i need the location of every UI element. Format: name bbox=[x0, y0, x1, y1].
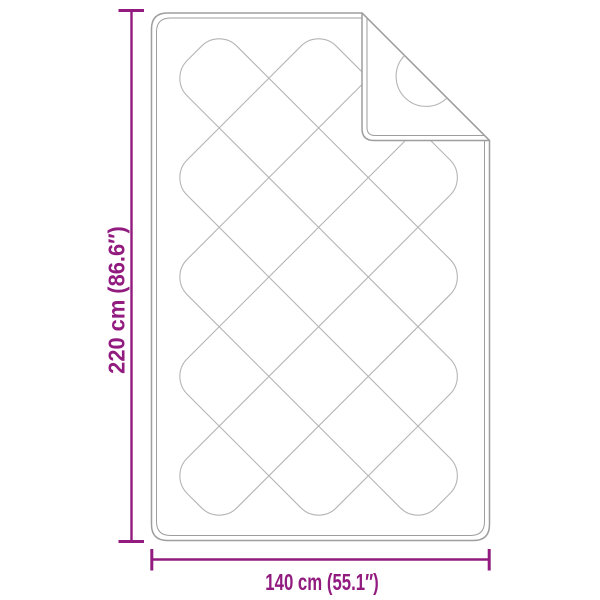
height-dimension-label: 220 cm (86.6″) bbox=[104, 226, 130, 374]
product-dimension-image: 220 cm (86.6″) 140 cm (55.1″) bbox=[0, 0, 600, 600]
width-dimension-label: 140 cm (55.1″) bbox=[265, 571, 378, 596]
blanket-dimension-diagram: 220 cm (86.6″) 140 cm (55.1″) bbox=[0, 0, 600, 600]
folded-corner-flap bbox=[362, 13, 490, 141]
